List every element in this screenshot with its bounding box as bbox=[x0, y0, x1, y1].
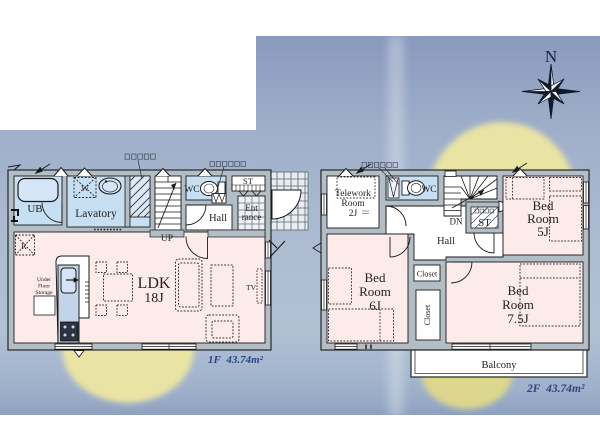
svg-text:Room: Room bbox=[502, 297, 534, 312]
svg-text:TV: TV bbox=[246, 283, 257, 292]
svg-text:WC: WC bbox=[421, 185, 436, 195]
svg-text:LDK: LDK bbox=[138, 275, 171, 292]
svg-text:Closet: Closet bbox=[417, 270, 438, 279]
svg-text:N: N bbox=[545, 47, 557, 66]
svg-text:6J: 6J bbox=[369, 298, 381, 313]
svg-text:UB: UB bbox=[27, 203, 42, 215]
svg-text:Under: Under bbox=[37, 277, 51, 283]
svg-text:Closet: Closet bbox=[423, 304, 432, 325]
svg-text:Storage: Storage bbox=[35, 290, 53, 296]
svg-text:2J: 2J bbox=[349, 209, 358, 219]
svg-text:Room: Room bbox=[359, 284, 391, 299]
svg-text:1F 43.74m²: 1F 43.74m² bbox=[208, 354, 264, 366]
svg-text:Balcony: Balcony bbox=[482, 360, 518, 371]
svg-text:2F 43.74m²: 2F 43.74m² bbox=[526, 383, 585, 395]
svg-text:WC: WC bbox=[184, 185, 199, 195]
svg-text:Hall: Hall bbox=[437, 236, 455, 247]
svg-text:ST: ST bbox=[478, 218, 491, 229]
svg-text:ST: ST bbox=[243, 176, 254, 186]
svg-text:UP: UP bbox=[161, 234, 173, 244]
svg-text:Bed: Bed bbox=[365, 270, 386, 285]
svg-text:Telework: Telework bbox=[335, 189, 371, 199]
svg-text:Room: Room bbox=[341, 199, 365, 209]
svg-text:7.5J: 7.5J bbox=[507, 311, 528, 326]
svg-text:Hall: Hall bbox=[209, 213, 227, 224]
svg-text:Lavatory: Lavatory bbox=[75, 208, 117, 220]
svg-text:Bed: Bed bbox=[508, 283, 529, 298]
svg-text:rance: rance bbox=[242, 212, 261, 222]
svg-text:18J: 18J bbox=[144, 291, 164, 306]
svg-text:5J: 5J bbox=[537, 224, 549, 239]
svg-text:Floor: Floor bbox=[38, 284, 50, 290]
svg-text:R: R bbox=[21, 241, 27, 251]
svg-text:W: W bbox=[81, 184, 89, 193]
svg-text:DN: DN bbox=[450, 217, 463, 227]
